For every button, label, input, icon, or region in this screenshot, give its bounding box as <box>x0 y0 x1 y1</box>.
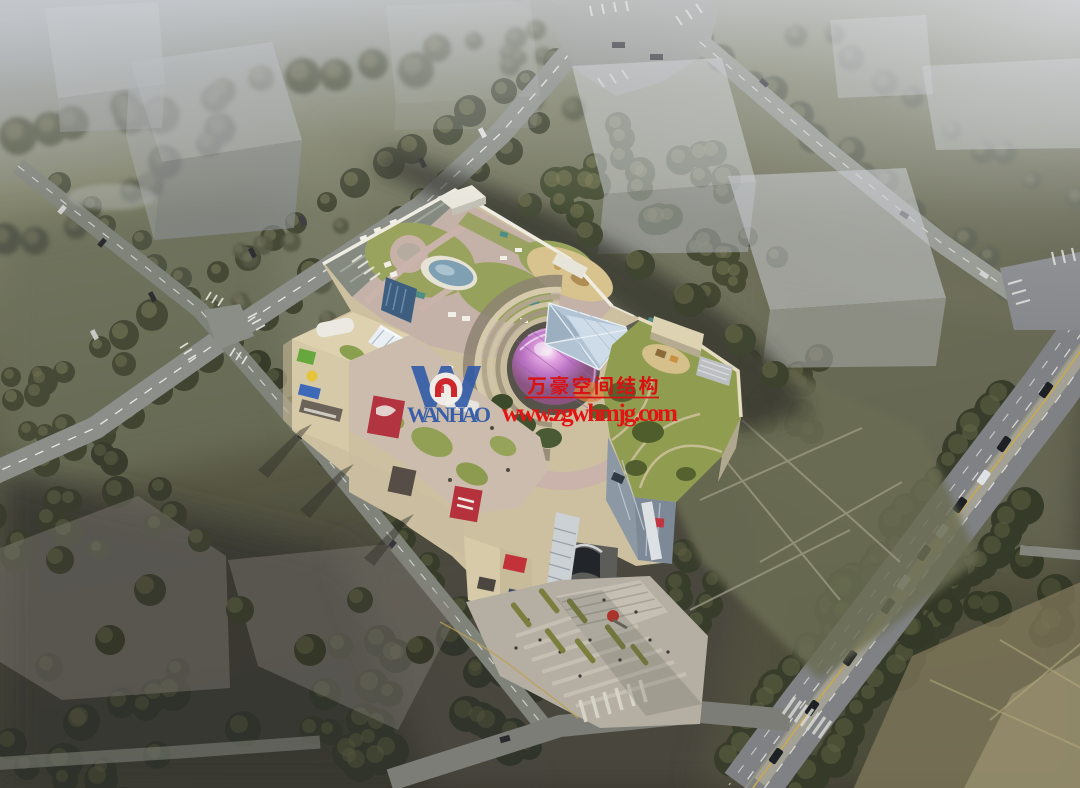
svg-text:WAN HAO: WAN HAO <box>407 402 491 427</box>
svg-text:www.zgwhmjg.com: www.zgwhmjg.com <box>502 400 678 427</box>
